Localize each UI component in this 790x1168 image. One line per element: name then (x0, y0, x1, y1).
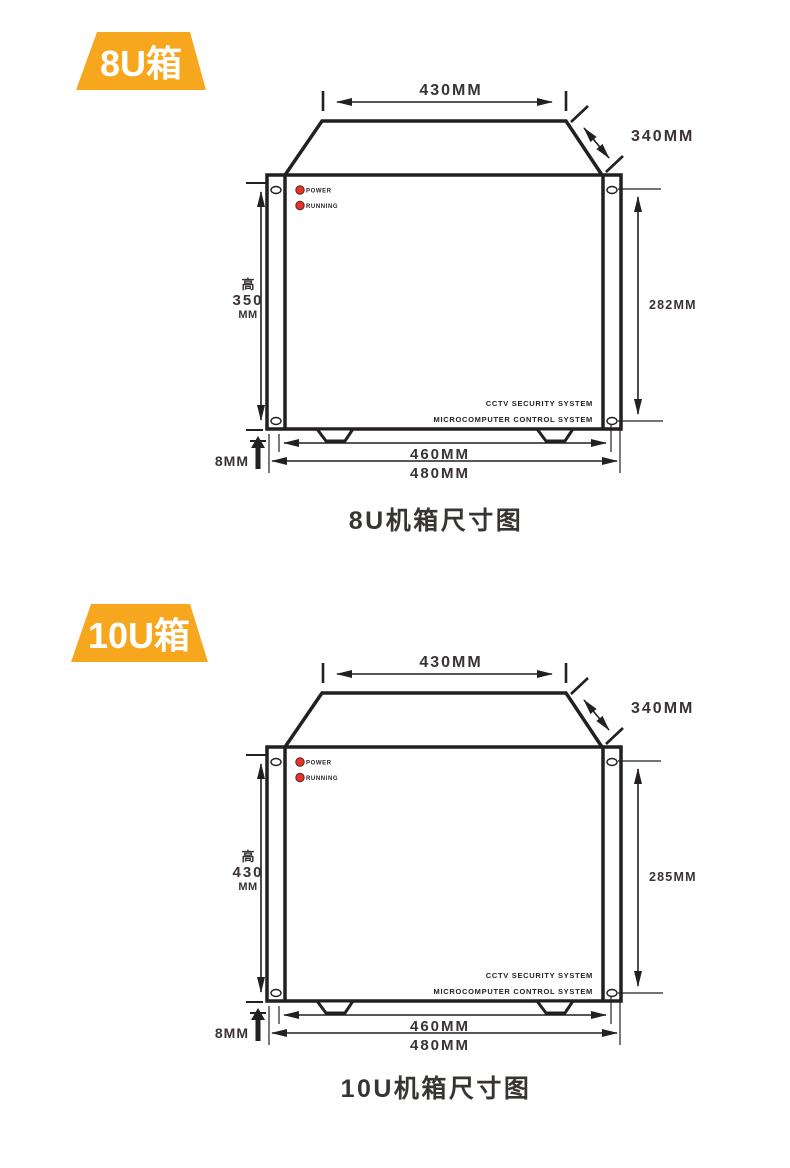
dimension-top-width: 430MM (323, 654, 566, 683)
depth-value: 340MM (631, 700, 694, 717)
power-led-icon (296, 186, 304, 194)
front-height-unit: MM (238, 309, 257, 321)
dimension-tick (606, 728, 623, 744)
dimension-tick (606, 156, 623, 172)
foot-height-arrow-stem (256, 1019, 261, 1041)
running-led-label: RUNNING (306, 204, 338, 210)
dimension-front-height: 高 430 MM (232, 755, 268, 992)
top-view-trapezoid (285, 121, 602, 175)
front-height-prefix: 高 (241, 277, 254, 292)
dimension-depth: 340MM (571, 106, 694, 172)
foot-height-value: 8MM (215, 1025, 249, 1041)
brand-line-1: CCTV SECURITY SYSTEM (486, 971, 593, 980)
front-panel: POWER RUNNING CCTV SECURITY SYSTEM MICRO… (267, 747, 621, 1013)
mounting-hole (271, 759, 281, 766)
chassis-foot (317, 1001, 353, 1013)
brand-line-2: MICROCOMPUTER CONTROL SYSTEM (434, 987, 593, 996)
front-height-value: 350 (232, 292, 263, 309)
brand-line-2: MICROCOMPUTER CONTROL SYSTEM (434, 415, 593, 424)
top-width-value: 430MM (419, 82, 482, 99)
dimension-front-height: 高 350 MM (232, 183, 268, 420)
badge-label: 10U箱 (88, 615, 190, 656)
mounting-hole (271, 187, 281, 194)
running-led-icon (296, 773, 304, 781)
dimension-mounting-spacing: 282MM (618, 189, 697, 421)
front-height-prefix: 高 (241, 849, 254, 864)
power-led-icon (296, 758, 304, 766)
chassis-foot (317, 429, 353, 441)
mounting-hole (271, 990, 281, 997)
chassis-foot (537, 1001, 573, 1013)
mounting-hole (607, 187, 617, 194)
10u-badge: 10U箱 (71, 604, 208, 662)
badge-label: 8U箱 (100, 43, 182, 84)
top-view-trapezoid (285, 693, 602, 747)
spec-sheet: 8U箱 430MM 340MM POWER (0, 0, 790, 1138)
dimension-top-width: 430MM (323, 82, 566, 111)
panel-outline (267, 175, 621, 429)
front-panel: POWER RUNNING CCTV SECURITY SYSTEM MICRO… (267, 175, 621, 441)
dimension-mounting-spacing: 285MM (618, 761, 697, 993)
power-led-label: POWER (306, 761, 332, 767)
mounting-hole (607, 418, 617, 425)
mounting-spacing-value: 285MM (649, 870, 697, 884)
dimension-depth: 340MM (571, 678, 694, 744)
10u-chassis-dimension-diagram: 10U箱 430MM 340MM POWER (0, 572, 790, 1138)
power-led-label: POWER (306, 189, 332, 195)
front-height-unit: MM (238, 881, 257, 893)
top-width-value: 430MM (419, 654, 482, 671)
mounting-spacing-value: 282MM (649, 298, 697, 312)
running-led-icon (296, 201, 304, 209)
panel-outline (267, 747, 621, 1001)
mounting-hole (607, 990, 617, 997)
diagram-caption: 8U机箱尺寸图 (349, 506, 523, 535)
depth-value: 340MM (631, 128, 694, 145)
overall-width-value: 480MM (410, 465, 470, 482)
dimension-tick (571, 106, 588, 122)
dimension-tick (571, 678, 588, 694)
overall-width-value: 480MM (410, 1037, 470, 1054)
mounting-hole (271, 418, 281, 425)
running-led-label: RUNNING (306, 776, 338, 782)
chassis-foot (537, 429, 573, 441)
mounting-hole (607, 759, 617, 766)
8u-badge: 8U箱 (76, 32, 206, 90)
front-height-value: 430 (232, 864, 263, 881)
brand-line-1: CCTV SECURITY SYSTEM (486, 399, 593, 408)
foot-height-value: 8MM (215, 453, 249, 469)
diagram-caption: 10U机箱尺寸图 (341, 1074, 532, 1103)
foot-height-arrow-stem (256, 447, 261, 469)
top-view-outline (285, 121, 602, 175)
8u-chassis-dimension-diagram: 8U箱 430MM 340MM POWER (0, 0, 790, 566)
top-view-outline (285, 693, 602, 747)
